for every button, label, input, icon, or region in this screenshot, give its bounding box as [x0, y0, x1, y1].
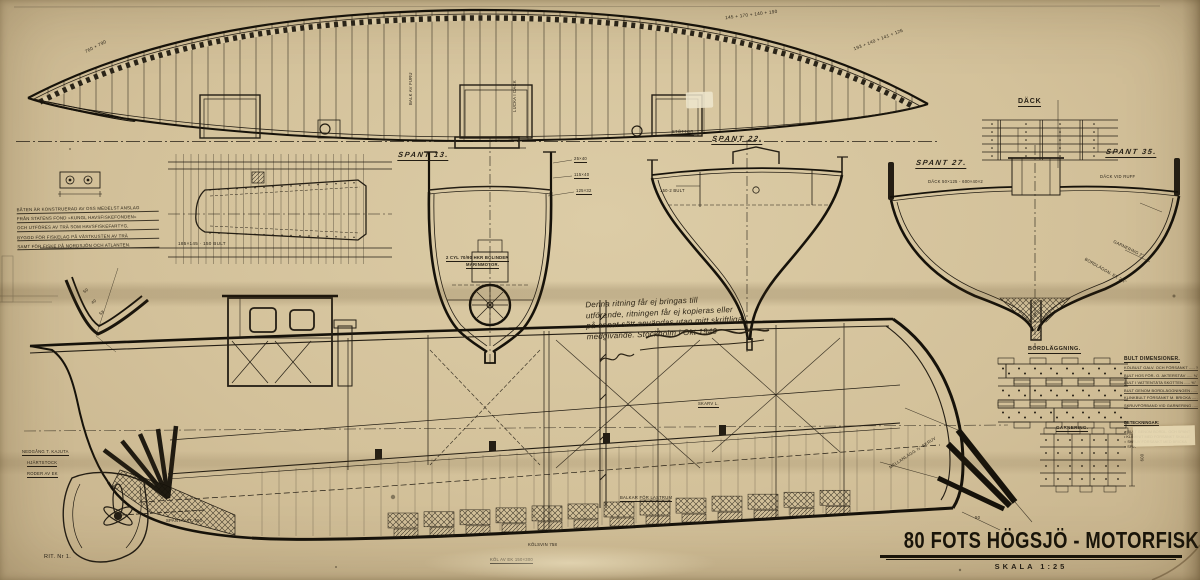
spant13-dim2: 115×40 — [574, 172, 589, 179]
spant35-note: DÄCK VID RUFF — [1100, 174, 1135, 179]
blueprint-paper: 760 + 790 145 + 170 + 140 + 190 193 + 14… — [0, 0, 1200, 580]
garnering-dim: 600 — [1139, 454, 1144, 462]
spant35-label: SPANT 35. — [1105, 147, 1157, 158]
deck-hatch-note: LUCKA I DÄCK — [512, 80, 517, 112]
balkar-label: BALKAR FÖR LASTRUM — [620, 495, 672, 502]
spec-line: FRÅN STATENS FOND »KUNGL HAVSFISKEFONDEN… — [17, 214, 159, 223]
bult-legend-title: BETECKNINGAR: — [1124, 420, 1159, 426]
stem-curve-detail — [66, 268, 148, 352]
spec-line: BÅTEN ÄR KONSTRUERAD AV OSS MEDELST ANSL… — [17, 205, 159, 214]
spec-line: SAMT FÖR FISKE PÅ NORDSJÖN OCH ATLANTEN. — [17, 242, 159, 251]
garnering-diagram — [1040, 428, 1135, 492]
bordlaggning-diagram — [998, 358, 1128, 428]
bult-title: BULT DIMENSIONER. — [1124, 356, 1180, 363]
light-patch — [425, 546, 715, 580]
engine-label-2: MARINMOTOR. — [466, 262, 499, 269]
skarv-label: SKARV L. — [698, 401, 719, 408]
specification-note: BÅTEN ÄR KONSTRUERAD AV OSS MEDELST ANSL… — [17, 205, 160, 253]
bolt-detail — [58, 172, 102, 197]
spant13-label: SPANT 13. — [397, 150, 449, 161]
spant27-deck-dim: DÄCK 50×125 - 600×40×2 — [928, 179, 983, 184]
deck-detail-label: DÄCK — [1018, 98, 1041, 107]
engine-label-1: 2 CYL 70/90 HKR BOLINDER — [446, 255, 509, 262]
spantavst-label: SPANTAVST. 550 — [166, 518, 202, 523]
spant22-note: STÖTTOR — [672, 129, 694, 136]
deck-plan — [16, 8, 940, 145]
handwritten-note: Denna ritning får ej bringas till utföra… — [585, 294, 743, 343]
spant22-label: SPANT 22. — [711, 134, 763, 145]
spec-line: OCH UTFÖRES AV TRÄ SOM HAVSFISKEFARTYG, — [17, 223, 159, 232]
drawing-title: 80 FOTS HÖGSJÖ - MOTORFISKEBÅT. — [904, 527, 1158, 554]
nedgang-label: NEDGÅNG T. KAJUTA — [22, 449, 69, 456]
section-spant27-35 — [888, 145, 1180, 348]
garnering-label: GARNERING. — [1056, 425, 1088, 432]
ritnr-label: RIT. Nr 1. — [44, 554, 71, 560]
paper-patch — [1133, 425, 1196, 447]
spant27-label: SPANT 27. — [915, 158, 967, 169]
right-edge-shadow — [1182, 0, 1200, 580]
drawing-scale: SKALA 1:25 — [872, 562, 1190, 571]
drawing-artwork — [0, 0, 1200, 580]
hjartstock-label: HJÄRTSTOCK — [27, 460, 57, 467]
deck-beam-note: BALK AV FURU — [408, 72, 413, 105]
fan-dim: 50 — [975, 515, 980, 520]
spant13-dim1: 25×40 — [574, 156, 587, 163]
keel-detail-dim: 185×145 · 150 BULT — [178, 241, 226, 246]
spant22-dim1: 150·2 BULT — [660, 188, 685, 193]
roder-label: RODER AV EK — [27, 471, 58, 478]
title-underline-2 — [886, 559, 1176, 560]
bordlaggning-label: BORDLÄGGNING. — [1028, 346, 1081, 354]
title-underline — [880, 555, 1182, 558]
title-block: 80 FOTS HÖGSJÖ - MOTORFISKEBÅT. SKALA 1:… — [872, 527, 1190, 571]
spant13-dim3: 125×32 — [576, 188, 592, 195]
whiteout-patch — [686, 92, 714, 109]
spec-line: BYGGD FÖR FISKELAG PÅ VÄSTKUSTEN AV TRÄ — [17, 232, 159, 241]
